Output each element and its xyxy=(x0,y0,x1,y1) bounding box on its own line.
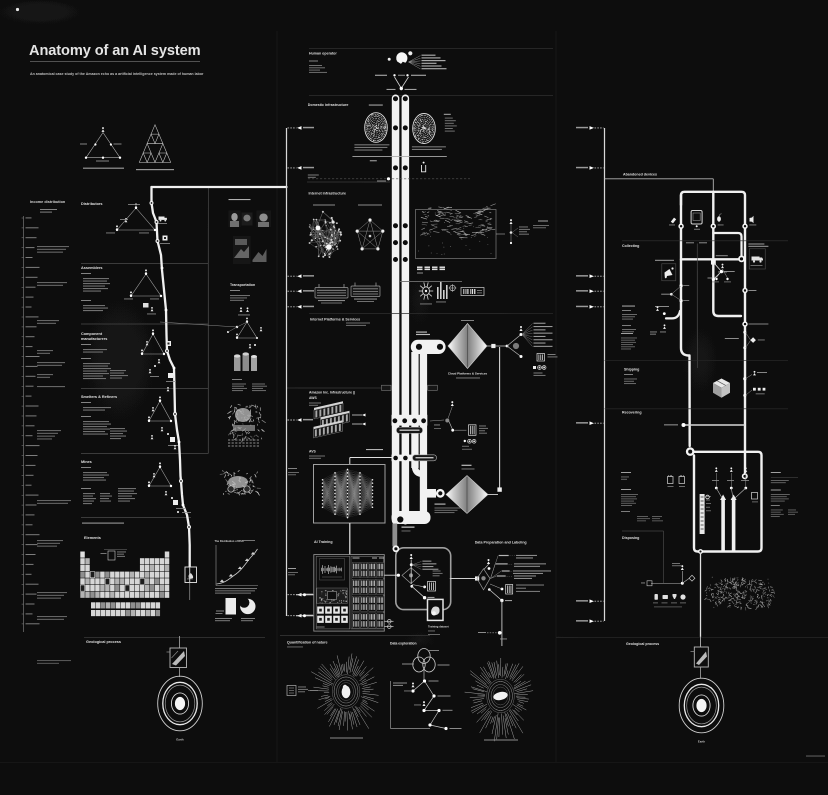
svg-text:Geological process: Geological process xyxy=(626,642,659,646)
svg-text:Anatomy of an AI system: Anatomy of an AI system xyxy=(29,43,201,59)
svg-text:Recovering: Recovering xyxy=(622,411,642,415)
svg-text:Mines: Mines xyxy=(81,460,92,464)
svg-text:Internet infrastructure: Internet infrastructure xyxy=(309,192,347,196)
svg-text:Distributors: Distributors xyxy=(81,202,103,206)
svg-text:Internet Platforms & Services: Internet Platforms & Services xyxy=(310,318,360,322)
svg-text:Earth: Earth xyxy=(176,738,183,742)
svg-text:Domestic infrastructure: Domestic infrastructure xyxy=(308,103,349,107)
svg-text:Transportation: Transportation xyxy=(230,283,255,287)
svg-text:Geological process: Geological process xyxy=(86,640,121,644)
svg-text:Cloud Platforms & Services: Cloud Platforms & Services xyxy=(448,372,488,376)
svg-text:Amazon Inc. Infrastructure ||: Amazon Inc. Infrastructure || xyxy=(309,391,355,395)
svg-text:Shipping: Shipping xyxy=(624,368,639,372)
svg-text:Assemblers: Assemblers xyxy=(81,266,103,270)
svg-text:Earth: Earth xyxy=(698,740,705,744)
svg-text:Data Preparation and Labeling: Data Preparation and Labeling xyxy=(475,541,527,545)
svg-text:Data exploration: Data exploration xyxy=(390,642,417,646)
svg-text:An anatomical case study of th: An anatomical case study of the Amazon e… xyxy=(30,72,204,76)
svg-text:Income distribution: Income distribution xyxy=(30,200,66,204)
svg-text:Elements: Elements xyxy=(84,536,101,540)
svg-text:Component: Component xyxy=(81,332,103,336)
svg-text:Collecting: Collecting xyxy=(622,244,639,248)
svg-text:Disposing: Disposing xyxy=(622,536,639,540)
svg-text:Smelters & Refiners: Smelters & Refiners xyxy=(81,395,117,399)
svg-text:Abandoned devices: Abandoned devices xyxy=(623,173,657,177)
svg-text:AVS: AVS xyxy=(309,450,316,454)
svg-text:Quantification of nature: Quantification of nature xyxy=(287,641,328,645)
svg-text:Human operator: Human operator xyxy=(309,52,337,56)
svg-text:AI Training: AI Training xyxy=(314,540,333,544)
svg-text:AWS: AWS xyxy=(309,396,317,400)
svg-text:manufacturers: manufacturers xyxy=(81,337,107,341)
